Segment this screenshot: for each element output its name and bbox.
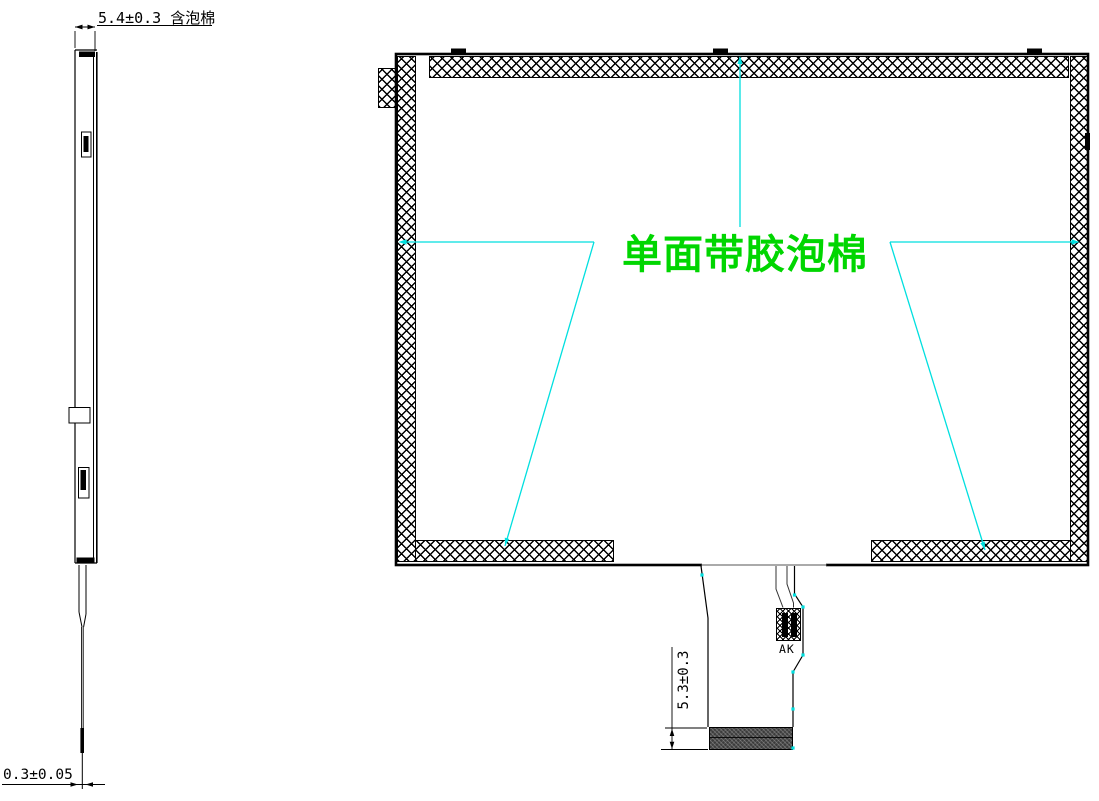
fpc-stiffener-dimension-label: 5.3±0.3	[676, 639, 692, 721]
leader-lines	[399, 56, 1080, 550]
front-view	[396, 49, 1090, 750]
dim-arrow-left	[75, 25, 83, 30]
foam-callout-label: 单面带胶泡棉	[622, 222, 868, 280]
dim-arrow-to-left	[86, 782, 94, 787]
dim-arrow-up	[670, 729, 675, 736]
side-component-upper	[82, 132, 92, 157]
leader-arrow-right	[1072, 239, 1080, 244]
fpc-tail-side	[79, 565, 86, 789]
leader-arrow-left	[399, 239, 407, 244]
side-notch	[69, 408, 90, 424]
dim-arrow-right	[88, 25, 96, 30]
side-view	[2, 25, 212, 789]
leader-arrow-bottom-left	[505, 538, 510, 546]
dim-arrow-down	[670, 742, 675, 749]
edge-tape-marks	[451, 49, 1090, 151]
connector-pin-right	[791, 613, 797, 637]
technical-drawing-canvas: 5.4±0.3 含泡棉 0.3±0.05 单面带胶泡棉 5.3±0.3 AK	[0, 0, 1099, 801]
grip-points	[700, 573, 804, 749]
connector-label: AK	[779, 642, 795, 656]
side-thickness-dimension	[75, 25, 212, 51]
tape-mark-bottom	[77, 558, 95, 564]
leader-arrow-top	[737, 56, 742, 64]
leader-arrow-bottom-right	[980, 541, 985, 550]
connector-pin-left	[782, 613, 789, 637]
tape-mark-top	[79, 52, 95, 58]
drawing-linework	[0, 0, 1099, 801]
side-component-lower	[79, 468, 90, 499]
side-thickness-dimension-label: 5.4±0.3 含泡棉	[98, 7, 215, 28]
film-thickness-dimension-label: 0.3±0.05	[3, 767, 73, 783]
panel-outline	[396, 54, 1088, 565]
fpc-connector	[776, 608, 801, 642]
